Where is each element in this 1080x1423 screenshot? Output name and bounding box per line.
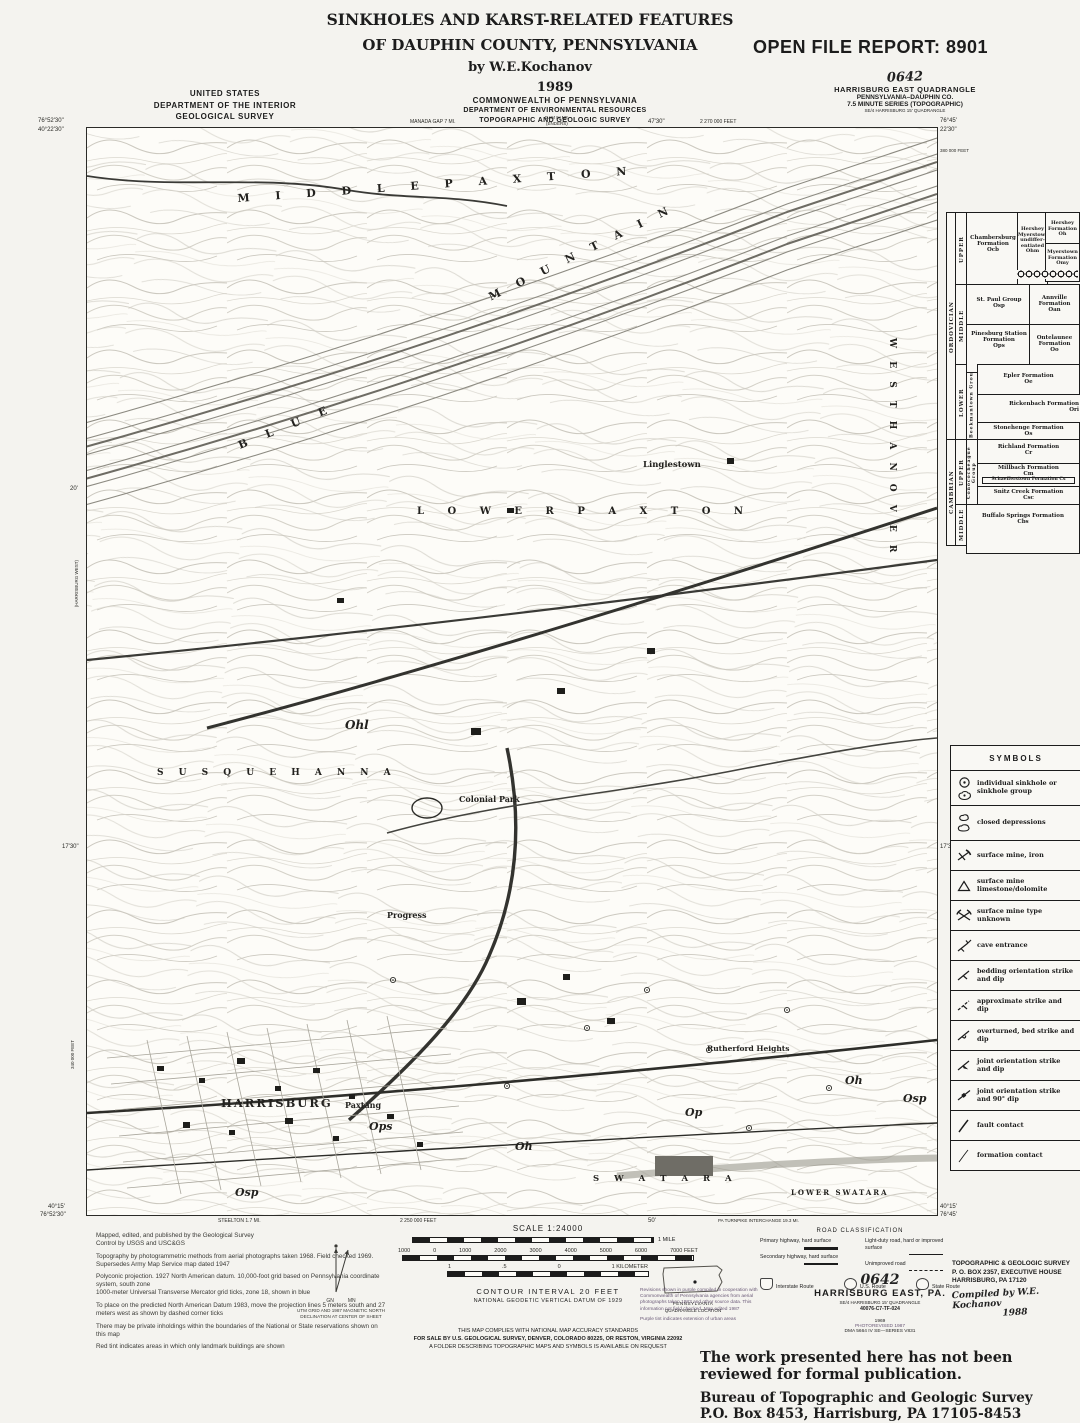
open-file-report-number: OPEN FILE REPORT: 8901 xyxy=(753,37,988,58)
symbols-legend-title: SYMBOLS xyxy=(951,746,1080,770)
edge-tick-4730: 47'30" xyxy=(648,119,665,125)
formation-schaefferstown: Schaefferstown Formation Cs xyxy=(982,477,1075,484)
geologic-annotation: Ohl xyxy=(345,718,369,732)
publication-notice: The work presented here has not been rev… xyxy=(700,1350,1030,1383)
scale-mile-label: 1 MILE xyxy=(658,1237,675,1243)
declination-caption-line2: DECLINATION AT CENTER OF SHEET xyxy=(296,1314,386,1320)
bureau-address: P.O. Box 8453, Harrisburg, PA 17105-8453 xyxy=(700,1406,1080,1422)
scale-bar-km xyxy=(447,1271,649,1277)
scale-km-labels: 1.5 01 KILOMETER xyxy=(448,1264,648,1270)
closed-depression-icon xyxy=(951,813,977,833)
township-label-swatara: S W A T A R A xyxy=(593,1174,738,1184)
usgs-line3: GEOLOGICAL SURVEY xyxy=(100,111,350,123)
corner-sw-longitude: 76°52'30" xyxy=(40,1212,66,1218)
revisions-line2: Purple tint indicates extension of urban… xyxy=(640,1317,758,1323)
scale-bar-feet xyxy=(402,1255,694,1261)
road-sample-lightduty xyxy=(909,1254,943,1255)
scanned-map-sheet: { "title_block": { "line1": "SINKHOLES A… xyxy=(0,0,1080,1423)
edge-tick-manada-gap: MANADA GAP 7 MI. xyxy=(410,119,455,125)
legend-item: surface mine limestone/dolomite xyxy=(951,870,1080,900)
edge-tick-adjoining-quad: DAM IV NE xyxy=(545,115,568,120)
sheet-dma: DMA 5664 IV SE—SERIES V831 xyxy=(780,1329,980,1334)
sinkhole-icon xyxy=(951,776,977,801)
legend-item: cave entrance xyxy=(951,930,1080,960)
corner-se-latitude: 40°15' xyxy=(940,1204,957,1210)
grid-north-label: GN xyxy=(326,1298,334,1304)
edge-tick-1730-left: 17'30" xyxy=(62,844,79,850)
formation-buffalo-springs: Buffalo Springs FormationCbs xyxy=(966,504,1080,554)
legend-item: surface mine type unknown xyxy=(951,900,1080,930)
corner-nw-latitude: 40°22'30" xyxy=(38,127,64,133)
credit-line: There may be private inholdings within t… xyxy=(96,1323,386,1339)
township-label-susquehanna: S U S Q U E H A N N A xyxy=(157,768,397,778)
scale-label: SCALE 1:24000 xyxy=(398,1224,698,1233)
pa-line1: COMMONWEALTH OF PENNSYLVANIA xyxy=(400,95,710,106)
sheet-code-handwritten-bottom: 0642 xyxy=(780,1272,980,1288)
town-label-progress: Progress xyxy=(387,910,426,920)
geologic-annotation: Oh xyxy=(845,1074,863,1087)
revisions-line1: Revisions shown in purple compiled in co… xyxy=(640,1288,758,1313)
edge-tick-adjoining-quad-name: (ENDERS) xyxy=(546,121,568,126)
bedding-strike-dip-icon xyxy=(951,968,977,983)
declination-diagram: GN MN UTM GRID AND 1987 MAGNETIC NORTH D… xyxy=(296,1240,386,1320)
sheet-name: HARRISBURG EAST, PA. xyxy=(780,1288,980,1299)
surface-mine-iron-icon xyxy=(951,849,977,863)
quadrangle-block: 0642 HARRISBURG EAST QUADRANGLE PENNSYLV… xyxy=(770,70,1040,113)
town-label-paxtang: Paxtang xyxy=(345,1100,381,1110)
declination-arrows xyxy=(306,1240,376,1298)
overturned-bed-icon xyxy=(951,1028,977,1043)
stratigraphic-column: ORDOVICIAN CAMBRIAN UPPER MIDDLE LOWER U… xyxy=(946,212,1078,544)
edge-tick-grid-feet-top: 2 270 000 FEET xyxy=(700,119,736,125)
cave-entrance-icon xyxy=(951,939,977,953)
road-sample-primary xyxy=(804,1247,838,1250)
legend-item: overturned, bed strike and dip xyxy=(951,1020,1080,1050)
unconformity-wavy-line xyxy=(1017,270,1078,279)
legend-item: fault contact xyxy=(951,1110,1080,1140)
sheet-number: 40076-C7-TF-024 xyxy=(780,1306,980,1312)
scale-feet-labels: 10000 10002000 30004000 50006000 7000 FE… xyxy=(398,1248,698,1254)
bureau-name: Bureau of Topographic and Geologic Surve… xyxy=(700,1390,1080,1406)
topographic-map: M I D D L E P A X T O N B L U E M O U N … xyxy=(86,127,938,1216)
magnetic-north-label: MN xyxy=(348,1298,356,1304)
credit-line: Red tint indicates areas in which only l… xyxy=(96,1343,386,1351)
corner-sw-latitude: 40°15' xyxy=(48,1204,65,1210)
legend-item: joint orientation strike and 90° dip xyxy=(951,1080,1080,1110)
joint-strike-dip-icon xyxy=(951,1058,977,1073)
edge-tick-state-grid-right: 380 000 FEET xyxy=(940,148,969,153)
survey-stamp: TOPOGRAPHIC & GEOLOGIC SURVEY P. O. BOX … xyxy=(952,1260,1078,1318)
credit-line: Mapped, edited, and published by the Geo… xyxy=(96,1232,386,1240)
usgs-agency-block: UNITED STATES DEPARTMENT OF THE INTERIOR… xyxy=(100,88,350,123)
report-title-line1: SINKHOLES AND KARST-RELATED FEATURES xyxy=(250,10,810,29)
legend-item: closed depressions xyxy=(951,805,1080,840)
town-label-linglestown: Linglestown xyxy=(643,460,701,470)
interstate-shield-icon xyxy=(760,1278,773,1290)
legend-item: joint orientation strike and dip xyxy=(951,1050,1080,1080)
sheet-sub: SE/4 HARRISBURG 15' QUADRANGLE xyxy=(780,1300,980,1305)
geologic-annotation: Osp xyxy=(235,1186,258,1199)
edge-tick-steelton: STEELTON 1.7 MI. xyxy=(218,1218,261,1224)
surface-mine-limestone-icon xyxy=(951,880,977,892)
city-label-harrisburg: HARRISBURG xyxy=(221,1096,333,1110)
geologic-annotation: Oh xyxy=(515,1140,533,1153)
edge-tick-turnpike: PA TURNPIKE INTERCHANGE 19.3 MI. xyxy=(718,1218,799,1223)
township-label-lower-paxton: L O W E R P A X T O N xyxy=(417,506,753,517)
corner-se-longitude: 76°45' xyxy=(940,1212,957,1218)
quad-line2: PENNSYLVANIA–DAUPHIN CO. xyxy=(770,94,1040,101)
scale-bar-mile xyxy=(412,1237,654,1243)
scale-block: SCALE 1:24000 1 MILE 10000 10002000 3000… xyxy=(398,1224,698,1350)
joint-90-dip-icon xyxy=(951,1088,977,1103)
sale-statement: FOR SALE BY U.S. GEOLOGICAL SURVEY, DENV… xyxy=(398,1336,698,1342)
report-byline: by W.E.Kochanov xyxy=(250,60,810,75)
accuracy-statement: THIS MAP COMPLIES WITH NATIONAL MAP ACCU… xyxy=(398,1328,698,1334)
quad-line3: 7.5 MINUTE SERIES (TOPOGRAPHIC) xyxy=(770,101,1040,108)
geologic-annotation: Ops xyxy=(369,1120,392,1133)
corner-ne-longitude: 76°45' xyxy=(940,118,957,124)
legend-item: surface mine, iron xyxy=(951,840,1080,870)
sheet-name-block: 0642 HARRISBURG EAST, PA. SE/4 HARRISBUR… xyxy=(780,1272,980,1334)
road-class-unimproved: Unimproved road xyxy=(865,1261,960,1268)
formation-contact-icon xyxy=(951,1148,977,1164)
edge-tick-adjacent-quad-left: (HARRISBURG WEST) xyxy=(74,560,79,607)
town-label-colonial-park: Colonial Park xyxy=(459,794,520,804)
symbols-legend: SYMBOLS individual sinkhole or sinkhole … xyxy=(950,745,1080,1171)
road-class-primary: Primary highway, hard surface xyxy=(760,1238,855,1245)
report-title-line2: OF DAUPHIN COUNTY, PENNSYLVANIA xyxy=(250,36,810,54)
legend-item: formation contact xyxy=(951,1140,1080,1170)
quad-line4: SE/4 HARRISBURG 15' QUADRANGLE xyxy=(770,108,1040,113)
stamp-line2: P. O. BOX 2357, EXECUTIVE HOUSE xyxy=(952,1269,1078,1278)
corner-ne-latitude: 22'30" xyxy=(940,127,957,133)
township-label-west-hanover: W E S T H A N O V E R xyxy=(887,338,897,557)
geologic-annotation: Osp xyxy=(903,1092,926,1105)
road-class-secondary: Secondary highway, hard surface xyxy=(760,1254,855,1261)
fault-contact-icon xyxy=(951,1118,977,1134)
road-sample-secondary xyxy=(804,1263,838,1265)
township-label-lower-swatara: LOWER SWATARA xyxy=(791,1188,889,1197)
approximate-strike-dip-icon xyxy=(951,998,977,1013)
surface-mine-unknown-icon xyxy=(951,909,977,923)
legend-item: approximate strike and dip xyxy=(951,990,1080,1020)
legend-item: individual sinkhole or sinkhole group xyxy=(951,770,1080,805)
road-class-lightduty: Light-duty road, hard or improved surfac… xyxy=(865,1238,960,1252)
usgs-line1: UNITED STATES xyxy=(100,88,350,100)
town-label-rutherford-heights: Rutherford Heights xyxy=(707,1044,789,1053)
road-sample-unimproved xyxy=(909,1270,943,1271)
edge-tick-state-grid-left: 340 000 FEET xyxy=(70,1040,75,1069)
map-year: 1989 xyxy=(400,80,710,95)
revisions-note: Revisions shown in purple compiled in co… xyxy=(640,1288,758,1323)
edge-tick-20min: 20' xyxy=(70,486,78,492)
folder-statement: A FOLDER DESCRIBING TOPOGRAPHIC MAPS AND… xyxy=(398,1344,698,1350)
legend-item: bedding orientation strike and dip xyxy=(951,960,1080,990)
road-classification-title: ROAD CLASSIFICATION xyxy=(760,1228,960,1234)
usgs-line2: DEPARTMENT OF THE INTERIOR xyxy=(100,100,350,112)
geologic-annotation: Op xyxy=(685,1106,702,1119)
stamp-line1: TOPOGRAPHIC & GEOLOGIC SURVEY xyxy=(952,1260,1078,1269)
corner-nw-longitude: 76°52'30" xyxy=(38,118,64,124)
